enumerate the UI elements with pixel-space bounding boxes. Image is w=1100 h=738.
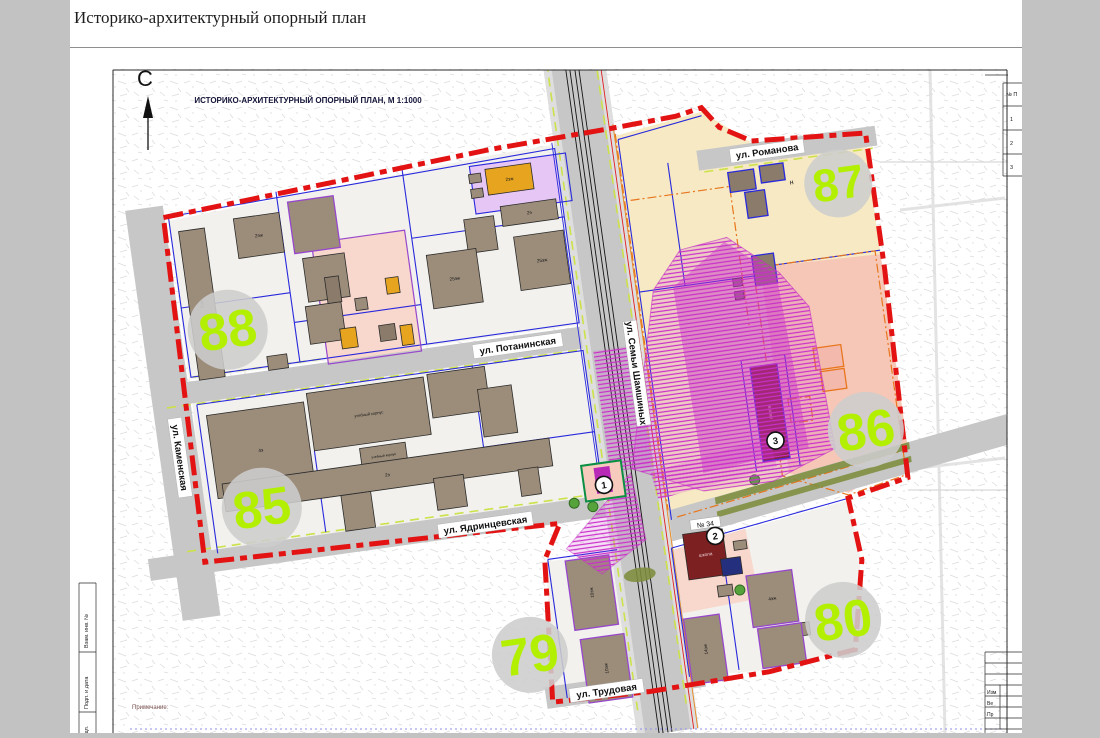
building (728, 169, 757, 192)
building (477, 385, 517, 437)
building (733, 540, 747, 551)
building (717, 584, 733, 597)
building (400, 324, 415, 345)
building (468, 173, 481, 184)
corner-table-cell: 1 (1010, 117, 1013, 123)
building (288, 196, 341, 254)
building (720, 557, 742, 577)
plan-image: 5эж2эж25эж25эж2эж2э4эучебный корпусучебн… (70, 55, 1022, 733)
title-block: Взам. инв. № Подп. и дата Инв. № подл. (79, 583, 96, 733)
titleblock-cell: Подп. и дата (84, 676, 90, 709)
plan-svg: 5эж2эж25эж25эж2эж2э4эучебный корпусучебн… (70, 55, 1022, 733)
note-label: Примечание: (132, 705, 169, 711)
quarter-number: 86 (833, 398, 898, 463)
page-title: Историко-архитектурный опорный план (74, 8, 366, 28)
building (379, 323, 397, 341)
building (471, 188, 484, 199)
north-label: С (137, 66, 153, 91)
building (385, 277, 400, 295)
building (341, 491, 376, 531)
page: Историко-архитектурный опорный план (70, 0, 1022, 733)
quarter-number: 88 (195, 298, 260, 363)
corner-table-cell: № П (1006, 92, 1017, 98)
bottom-table-cell: Пр (987, 712, 994, 718)
building (745, 190, 768, 219)
corner-table-cell: 3 (1010, 165, 1013, 171)
titleblock-cell: Инв. № подл. (84, 725, 90, 733)
building (464, 216, 498, 254)
building (267, 354, 289, 371)
building (433, 474, 467, 510)
bottom-table-cell: Изм (987, 690, 997, 696)
title-divider (70, 47, 1022, 48)
quarter-number: 85 (229, 476, 294, 541)
building (305, 302, 346, 345)
quarter-number: 80 (811, 588, 876, 653)
map-title: ИСТОРИКО-АРХИТЕКТУРНЫЙ ОПОРНЫЙ ПЛАН, М 1… (194, 96, 422, 105)
building (355, 297, 369, 311)
quarter-number: 79 (497, 623, 562, 688)
building (518, 467, 542, 497)
building (759, 163, 785, 183)
corner-table-cell: 2 (1010, 141, 1013, 147)
titleblock-cell: Взам. инв. № (84, 614, 90, 648)
bottom-table-cell: Ве (987, 701, 993, 707)
building (340, 327, 359, 349)
quarter-number: 87 (809, 154, 867, 213)
